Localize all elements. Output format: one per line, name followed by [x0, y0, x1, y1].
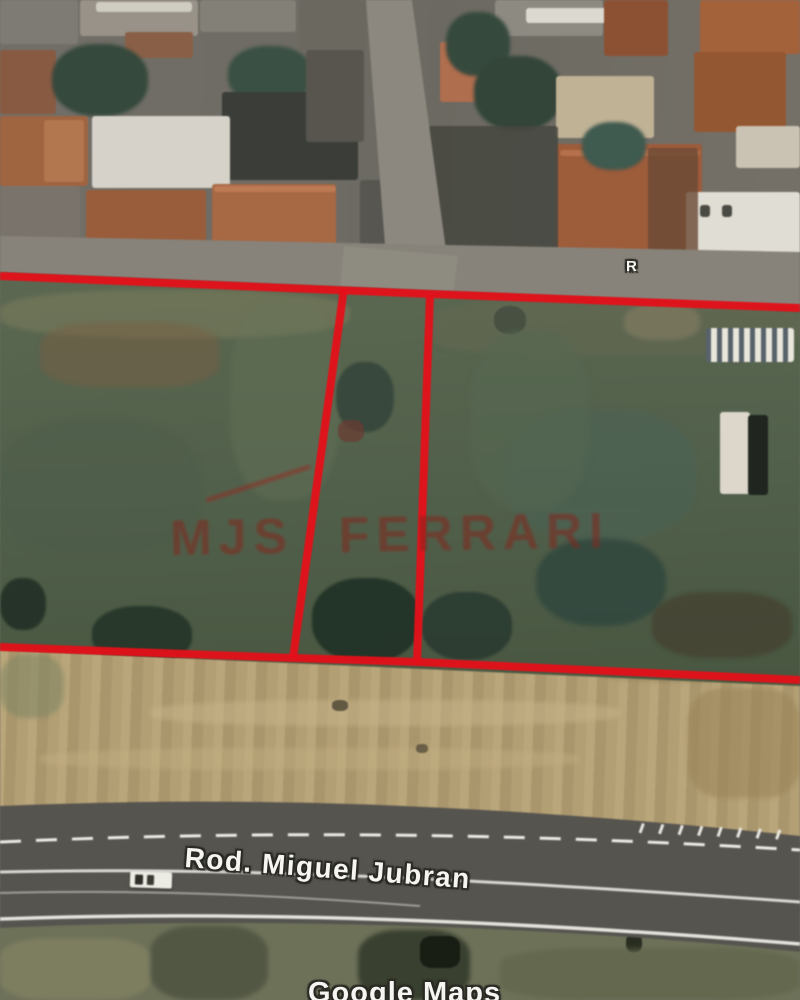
map-canvas[interactable]: MJS FERRARI R Rod. Miguel Jubran Google … [0, 0, 800, 1000]
street-name-label-partial: R [626, 258, 637, 275]
boundary-divider-right [417, 295, 430, 663]
boundary-divider-left [293, 288, 344, 658]
boundary-line-top [0, 276, 800, 308]
map-attribution[interactable]: Google Maps [308, 977, 501, 1000]
plot-boundary-overlay [0, 0, 800, 1000]
boundary-line-bottom [0, 647, 800, 680]
watermark-text: MJS FERRARI [170, 501, 641, 567]
